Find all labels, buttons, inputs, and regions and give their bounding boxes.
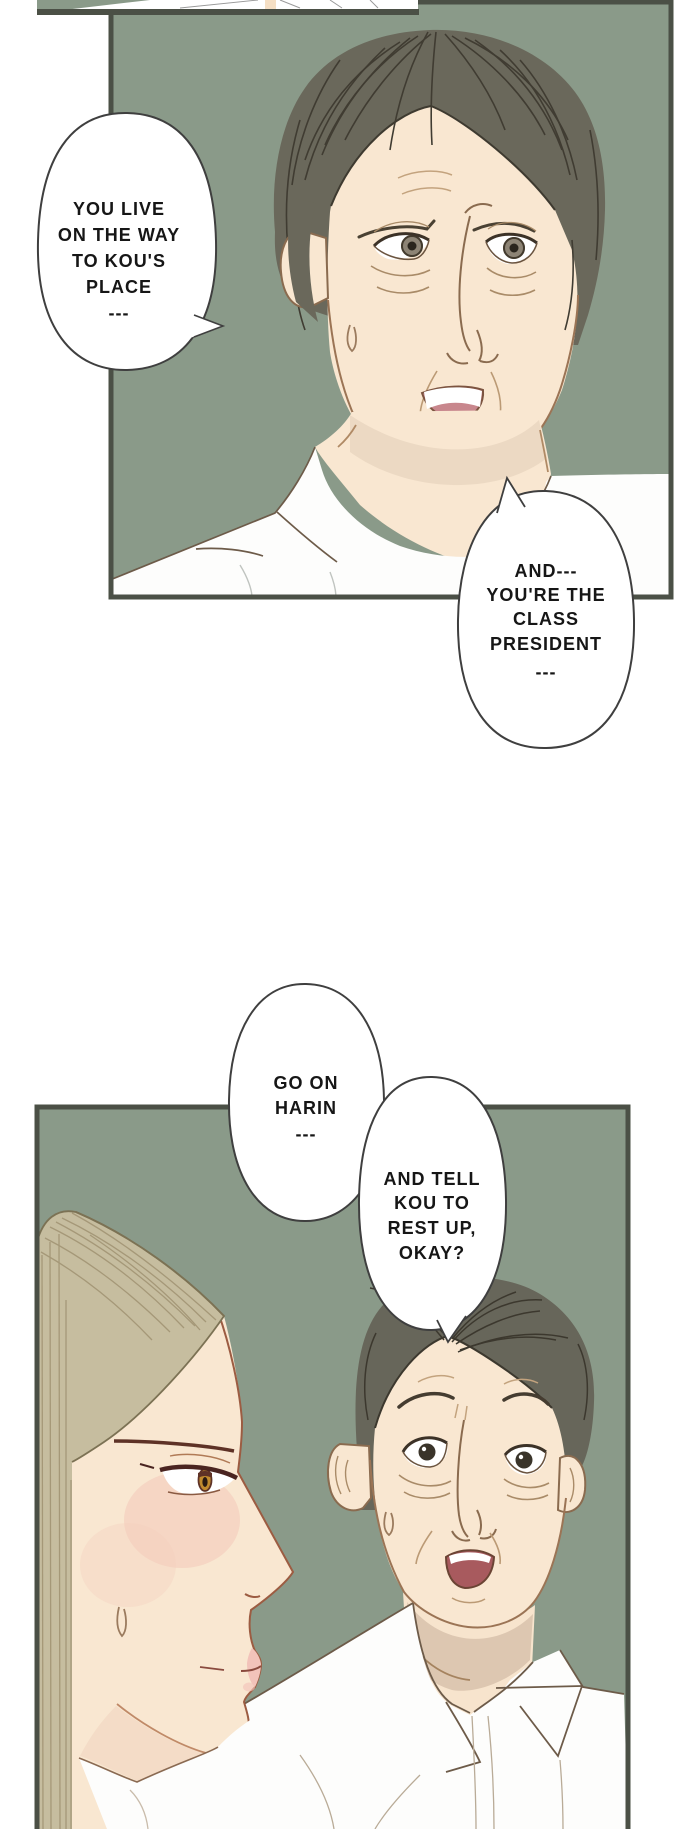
- svg-text:AND TELL: AND TELL: [384, 1169, 481, 1189]
- svg-text:PLACE: PLACE: [86, 277, 152, 297]
- svg-text:PRESIDENT: PRESIDENT: [490, 634, 602, 654]
- svg-text:---: ---: [109, 303, 130, 323]
- svg-text:HARIN: HARIN: [275, 1098, 337, 1118]
- svg-text:AND---: AND---: [515, 561, 578, 581]
- svg-text:YOU LIVE: YOU LIVE: [73, 199, 165, 219]
- svg-text:CLASS: CLASS: [513, 609, 579, 629]
- svg-text:REST UP,: REST UP,: [388, 1218, 477, 1238]
- svg-text:ON THE WAY: ON THE WAY: [58, 225, 180, 245]
- svg-text:---: ---: [536, 662, 557, 682]
- svg-text:YOU'RE THE: YOU'RE THE: [486, 585, 605, 605]
- svg-text:KOU TO: KOU TO: [394, 1193, 470, 1213]
- svg-text:OKAY?: OKAY?: [399, 1243, 465, 1263]
- svg-text:---: ---: [296, 1124, 317, 1144]
- svg-text:GO ON: GO ON: [273, 1073, 338, 1093]
- svg-text:TO KOU'S: TO KOU'S: [72, 251, 166, 271]
